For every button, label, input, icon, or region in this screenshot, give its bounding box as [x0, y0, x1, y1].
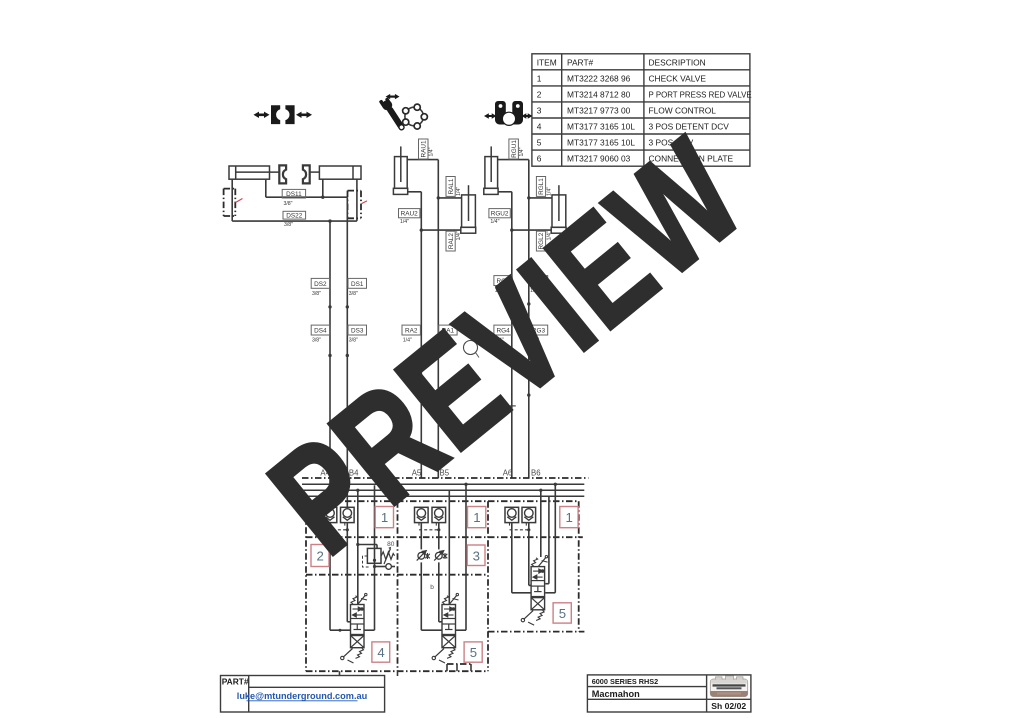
- svg-text:1: 1: [566, 510, 573, 525]
- svg-text:PART#: PART#: [567, 57, 594, 67]
- svg-text:DS22: DS22: [286, 213, 302, 220]
- svg-text:luke@mtunderground.com.au: luke@mtunderground.com.au: [237, 691, 367, 701]
- svg-text:3/8": 3/8": [349, 338, 358, 344]
- svg-text:RGL1: RGL1: [538, 178, 545, 195]
- svg-text:DS11: DS11: [286, 191, 302, 198]
- svg-text:ITEM: ITEM: [537, 57, 557, 67]
- svg-text:Sh 02/02: Sh 02/02: [711, 701, 746, 711]
- svg-text:RAL2: RAL2: [448, 233, 455, 249]
- svg-text:1: 1: [537, 73, 542, 83]
- svg-text:RAL1: RAL1: [448, 178, 455, 194]
- svg-text:1/4": 1/4": [456, 231, 462, 240]
- svg-text:2: 2: [537, 90, 542, 100]
- svg-text:DS2: DS2: [314, 281, 327, 288]
- svg-text:1/4": 1/4": [456, 187, 462, 196]
- svg-text:RAU2: RAU2: [401, 210, 418, 217]
- svg-text:RGU1: RGU1: [511, 140, 518, 158]
- svg-text:4: 4: [377, 645, 384, 660]
- svg-text:MT3217 9773 00: MT3217 9773 00: [567, 106, 631, 116]
- svg-text:4: 4: [537, 122, 542, 132]
- svg-text:3/8": 3/8": [283, 201, 292, 207]
- svg-text:3/8": 3/8": [312, 338, 321, 344]
- svg-text:5: 5: [470, 645, 477, 660]
- svg-text:6: 6: [537, 154, 542, 164]
- svg-text:B6: B6: [531, 469, 541, 478]
- svg-text:RAU1: RAU1: [420, 140, 427, 157]
- svg-text:DS4: DS4: [314, 328, 327, 335]
- svg-text:MT3222 3268 96: MT3222 3268 96: [567, 73, 631, 83]
- svg-text:MT3177 3165 10L: MT3177 3165 10L: [567, 122, 635, 132]
- svg-text:1/4": 1/4": [429, 147, 435, 156]
- svg-text:3/8": 3/8": [349, 291, 358, 297]
- svg-text:MT3214 8712 80: MT3214 8712 80: [567, 90, 631, 100]
- svg-text:RGU2: RGU2: [491, 210, 509, 217]
- svg-text:1/4": 1/4": [400, 219, 409, 225]
- svg-text:3: 3: [537, 106, 542, 116]
- svg-text:1/4": 1/4": [490, 219, 499, 225]
- svg-text:DS3: DS3: [351, 328, 364, 335]
- svg-text:5: 5: [559, 606, 566, 621]
- svg-text:A6: A6: [503, 469, 513, 478]
- svg-text:6000 SERIES RHS2: 6000 SERIES RHS2: [592, 677, 659, 686]
- svg-text:3/8": 3/8": [284, 222, 293, 228]
- svg-text:Macmahon: Macmahon: [592, 689, 640, 699]
- svg-text:DS1: DS1: [351, 281, 364, 288]
- svg-text:1/4": 1/4": [519, 147, 525, 156]
- svg-text:1: 1: [473, 510, 480, 525]
- svg-text:3/8": 3/8": [312, 291, 321, 297]
- svg-text:PART#: PART#: [222, 676, 249, 686]
- svg-text:1/4": 1/4": [546, 187, 552, 196]
- svg-text:CHECK VALVE: CHECK VALVE: [649, 73, 707, 83]
- svg-text:P PORT PRESS RED VALVE: P PORT PRESS RED VALVE: [649, 91, 752, 100]
- svg-text:b: b: [430, 584, 434, 591]
- svg-text:DESCRIPTION: DESCRIPTION: [649, 57, 706, 67]
- svg-text:5: 5: [537, 138, 542, 148]
- svg-text:3: 3: [473, 549, 480, 564]
